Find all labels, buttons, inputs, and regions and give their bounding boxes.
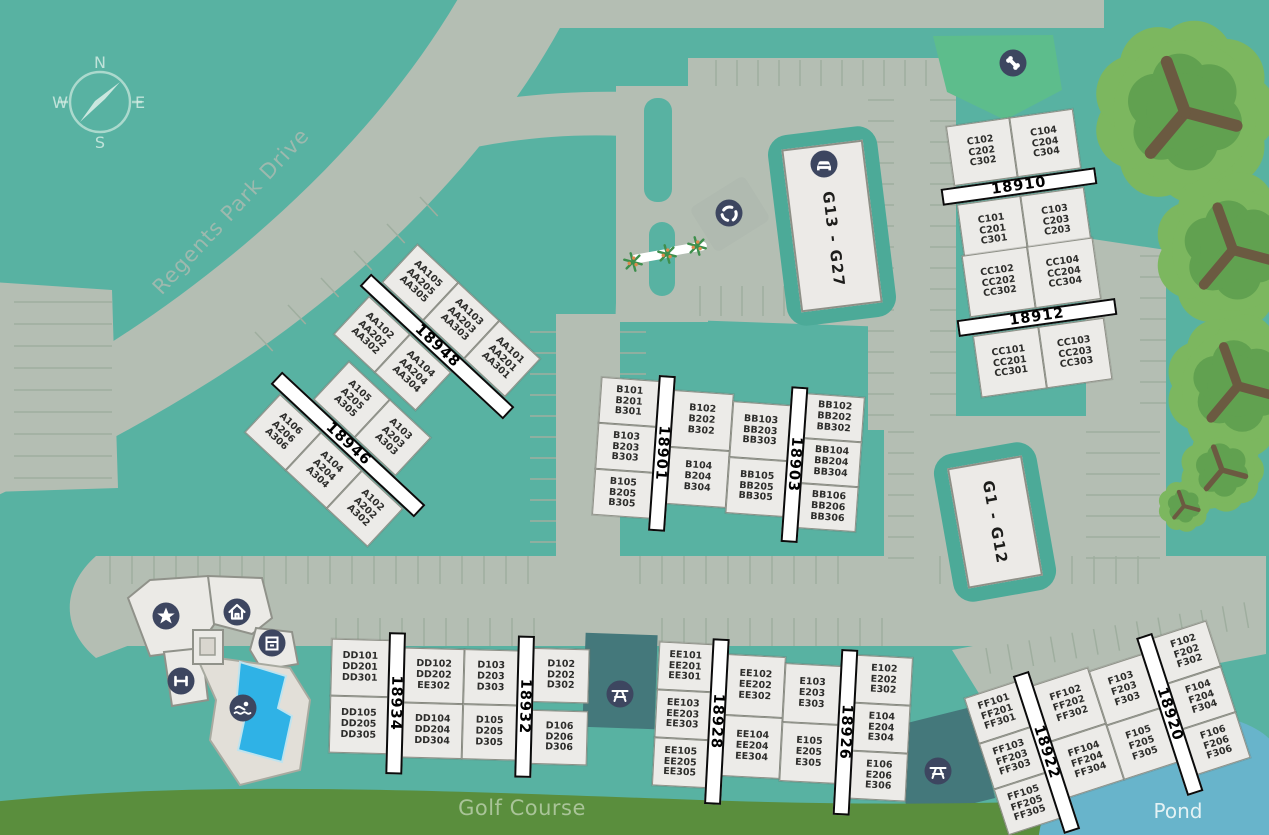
unit-stack-B102[interactable]: B102B202B302 (670, 390, 734, 451)
star-icon (153, 603, 180, 630)
garage-label: G1 - G12 (979, 479, 1011, 565)
unit-stack-EE105[interactable]: EE105EE205EE305 (652, 737, 708, 788)
compass-n: N (94, 53, 106, 72)
unit-stack-B103[interactable]: B103B203B303 (595, 423, 656, 473)
compass-w: W (52, 93, 68, 112)
unit-stack-EE104[interactable]: EE104EE204EE304 (722, 715, 783, 779)
picnic-table-icon (925, 758, 952, 785)
building-row: B101B201B301B103B203B303B105B205B3051890… (591, 377, 865, 547)
unit-stack-BB104[interactable]: BB104BB204BB304 (801, 438, 862, 487)
compass-s: S (95, 133, 105, 152)
unit-stack-DD101[interactable]: DD101DD201DD301 (330, 639, 389, 697)
unit-stack-E103[interactable]: E103E203E303 (782, 663, 841, 725)
compass-rose: N E S W (52, 53, 145, 152)
picnic-table-icon (607, 681, 634, 708)
unit-stack-BB103[interactable]: BB103BB203BB303 (729, 401, 791, 461)
unit-stack-C102[interactable]: C102C202C302 (946, 118, 1018, 186)
building-row: EE101EE201EE301EE103EE203EE303EE105EE205… (651, 641, 913, 818)
unit-stack-B105[interactable]: B105B205B305 (592, 469, 653, 519)
unit-stack-E106[interactable]: E106E206E306 (850, 751, 908, 802)
package-locker-icon (259, 630, 286, 657)
dog-park-bone-icon (1000, 50, 1027, 77)
pool-swimmer-icon (230, 695, 257, 722)
home-icon (224, 599, 251, 626)
fitness-dumbbell-icon (168, 668, 195, 695)
unit-stack-EE103[interactable]: EE103EE203EE303 (654, 689, 710, 740)
unit-stack-B104[interactable]: B104B204B304 (666, 447, 730, 508)
unit-stack-DD104[interactable]: DD104DD204DD304 (402, 703, 463, 760)
unit-stack-BB105[interactable]: BB105BB205BB305 (725, 457, 787, 517)
unit-stack-E102[interactable]: E102E202E302 (855, 655, 913, 706)
unit-stack-E104[interactable]: E104E204E304 (852, 703, 910, 754)
unit-stack-C104[interactable]: C104C204C304 (1009, 109, 1081, 177)
unit-stack-BB102[interactable]: BB102BB202BB302 (804, 393, 865, 442)
recycle-icon (716, 200, 743, 227)
unit-stack-D103[interactable]: D103D203D303 (463, 649, 518, 705)
compass-needle (80, 82, 120, 122)
unit-stack-B101[interactable]: B101B201B301 (598, 377, 659, 427)
unit-stack-EE102[interactable]: EE102EE202EE302 (725, 654, 786, 718)
building-row: DD101DD201DD301DD105DD205DD30518934DD102… (328, 639, 589, 780)
unit-stack-CC102[interactable]: CC102CC202CC302 (962, 247, 1036, 318)
unit-stack-CC101[interactable]: CC101CC201CC301 (973, 327, 1047, 398)
unit-stack-E105[interactable]: E105E205E305 (779, 722, 838, 784)
site-map: N E S W Regents Park Drive Golf Course P… (0, 0, 1269, 835)
unit-stack-CC104[interactable]: CC104CC204CC304 (1027, 238, 1101, 309)
unit-stack-D106[interactable]: D106D206D306 (531, 710, 588, 765)
garage-car-icon (811, 151, 838, 178)
compass-e: E (135, 93, 145, 112)
unit-stack-DD105[interactable]: DD105DD205DD305 (329, 696, 388, 754)
unit-stack-D105[interactable]: D105D205D305 (462, 704, 517, 760)
building-18912: CC102CC202CC302CC104CC204CC30418912CC101… (962, 238, 1113, 398)
garage-label: G13 - G27 (819, 190, 849, 288)
unit-stack-CC103[interactable]: CC103CC203CC303 (1038, 318, 1112, 389)
unit-stack-D102[interactable]: D102D202D302 (532, 648, 589, 703)
golf-course-label: Golf Course (458, 796, 586, 820)
unit-stack-BB106[interactable]: BB106BB206BB306 (798, 483, 859, 532)
unit-stack-EE101[interactable]: EE101EE201EE301 (657, 641, 713, 692)
unit-stack-DD102[interactable]: DD102DD202EE302 (403, 648, 464, 705)
